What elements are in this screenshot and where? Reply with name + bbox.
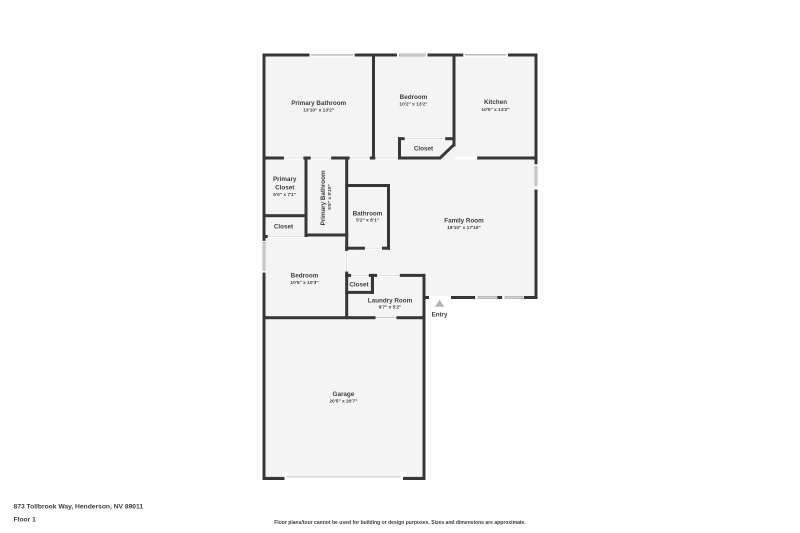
svg-text:Closet: Closet [275, 185, 295, 192]
svg-text:Closet: Closet [414, 146, 434, 153]
svg-text:13'10" x 13'2": 13'10" x 13'2" [303, 108, 334, 114]
svg-text:Floor plans/tour cannot be use: Floor plans/tour cannot be used for buil… [274, 520, 526, 526]
svg-text:5'2" x 8'1": 5'2" x 8'1" [356, 218, 379, 224]
svg-text:Primary Bathroom: Primary Bathroom [291, 100, 346, 107]
svg-text:Primary: Primary [273, 176, 297, 183]
svg-text:Closet: Closet [349, 282, 369, 289]
svg-text:Bedroom: Bedroom [400, 94, 428, 101]
svg-text:10'5" x 13'2": 10'5" x 13'2" [481, 107, 509, 113]
svg-text:Primary Bathroom: Primary Bathroom [320, 170, 327, 225]
svg-text:Bedroom: Bedroom [291, 273, 319, 280]
svg-text:18'10" x 17'10": 18'10" x 17'10" [447, 225, 481, 231]
svg-text:5'8" x 9'10": 5'8" x 9'10" [327, 184, 333, 210]
svg-text:Closet: Closet [274, 223, 294, 230]
svg-text:20'5" x 20'7": 20'5" x 20'7" [329, 399, 357, 405]
svg-text:Laundry Room: Laundry Room [368, 298, 413, 305]
svg-text:Floor 1: Floor 1 [14, 517, 37, 524]
svg-text:Kitchen: Kitchen [484, 99, 507, 106]
svg-text:Entry: Entry [432, 312, 448, 319]
svg-text:Bathroom: Bathroom [353, 211, 383, 218]
svg-text:Family Room: Family Room [444, 217, 484, 224]
svg-text:10'5" x 10'3": 10'5" x 10'3" [290, 280, 318, 286]
svg-text:Garage: Garage [333, 391, 355, 398]
svg-text:873 Tollbrook Way, Henderson,: 873 Tollbrook Way, Henderson, NV 89011 [14, 504, 144, 511]
svg-text:5'0" x 7'1": 5'0" x 7'1" [273, 192, 296, 198]
svg-text:10'2" x 13'2": 10'2" x 13'2" [399, 102, 427, 108]
svg-text:9'7" x 5'2": 9'7" x 5'2" [379, 305, 402, 311]
